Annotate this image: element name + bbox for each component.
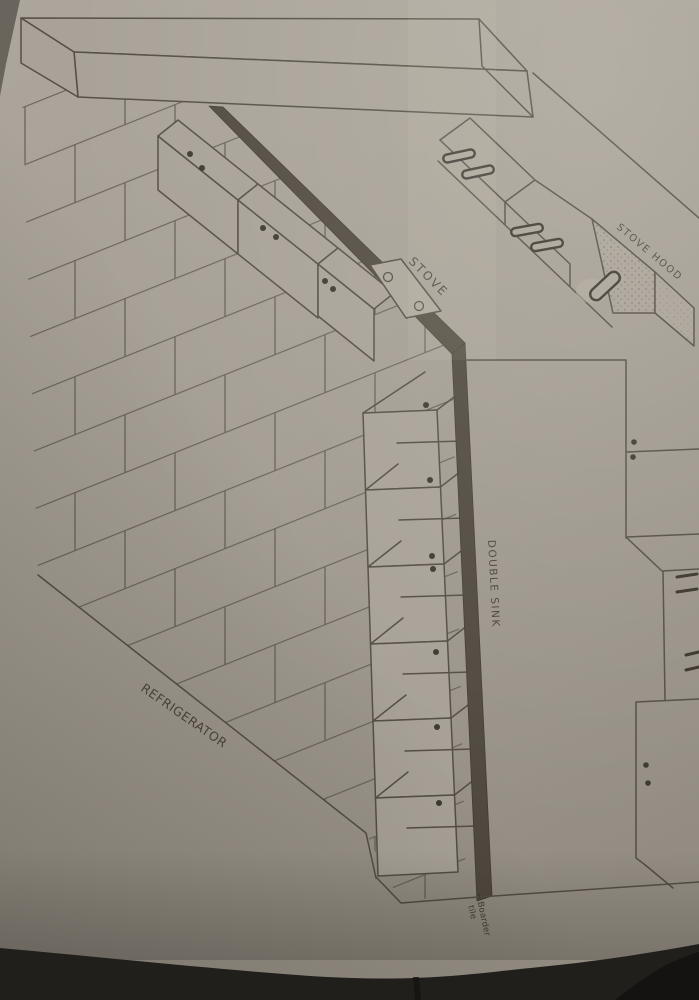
- photo-of-kitchen-sketch: STOVE STOVE HOOD DOUBLE SINK REFRIGERATO…: [0, 0, 699, 1000]
- kitchen-sketch-svg: STOVE STOVE HOOD DOUBLE SINK REFRIGERATO…: [0, 0, 699, 1000]
